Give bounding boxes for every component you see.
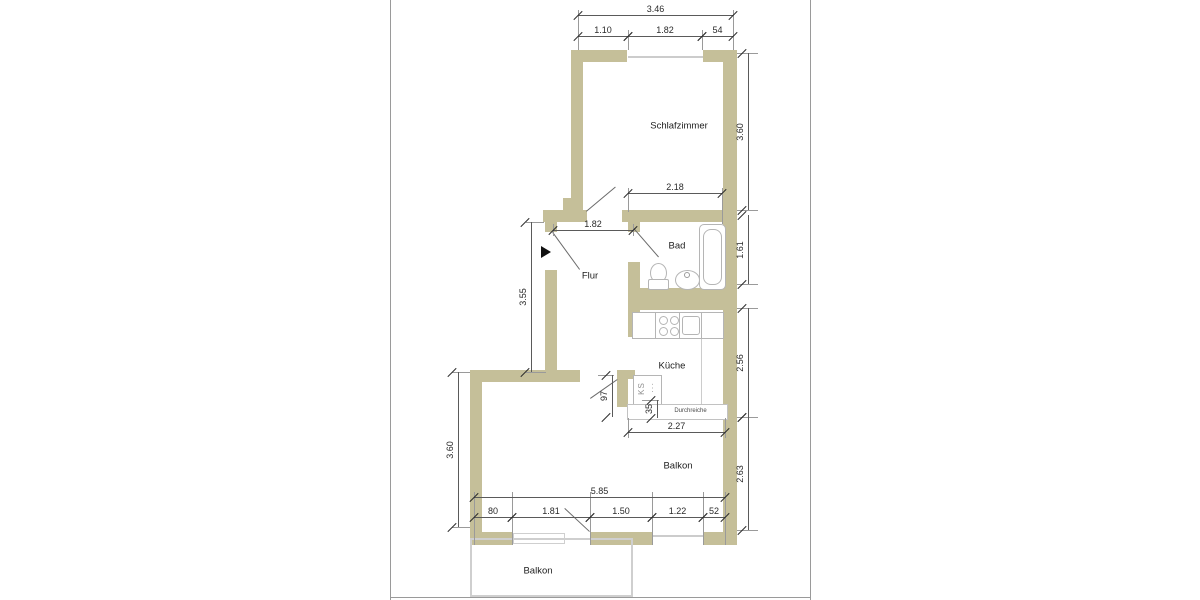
door-swing	[586, 187, 616, 212]
room-label-flur: Flur	[582, 271, 598, 282]
window-sill	[628, 56, 703, 58]
extension-line	[725, 418, 726, 438]
dimension-label: 3.60	[734, 110, 746, 154]
wall	[630, 288, 737, 310]
drainboard-outline	[701, 312, 724, 339]
dimension-line	[628, 193, 722, 194]
extension-line	[652, 492, 653, 545]
dimension-line	[628, 432, 725, 433]
floor-plan-page: 3.461.101.82542.181.822.275.85801.811.50…	[0, 0, 1200, 600]
dimension-line	[628, 36, 702, 37]
dimension-label: 1.50	[599, 505, 643, 517]
dimension-label: 97	[598, 374, 610, 418]
dimension-label: 52	[692, 505, 736, 517]
toilet-base	[648, 279, 669, 290]
dimension-line	[553, 230, 633, 231]
dimension-label: 1.82	[643, 24, 687, 36]
dimension-line	[703, 517, 725, 518]
wall	[545, 270, 557, 372]
dimension-line	[748, 417, 749, 530]
dimension-line	[748, 308, 749, 417]
extension-line	[628, 418, 629, 438]
extension-line	[452, 372, 470, 373]
extension-line	[452, 527, 470, 528]
dimension-line	[612, 375, 613, 417]
dimension-label: 54	[696, 24, 740, 36]
wall	[617, 379, 628, 407]
window-sill	[653, 535, 703, 537]
dimension-label: 3.46	[634, 3, 678, 15]
dimension-label: 3.60	[444, 428, 456, 472]
dimension-line	[590, 517, 652, 518]
dimension-label: 2.18	[653, 181, 697, 193]
room-label-bad: Bad	[669, 241, 686, 252]
room-label-balkon-lower: Balkon	[523, 566, 552, 577]
page-border-left	[390, 0, 391, 600]
dimension-line	[748, 215, 749, 284]
stove-burner-icon	[670, 316, 679, 325]
dimension-label: 1.82	[571, 218, 615, 230]
dimension-label: 1.81	[529, 505, 573, 517]
wall	[703, 532, 737, 545]
dimension-line	[748, 53, 749, 210]
page-border-right	[810, 0, 811, 600]
door-swing	[552, 232, 580, 270]
stove-burner-icon	[659, 327, 668, 336]
extension-line	[703, 492, 704, 545]
extension-line	[590, 492, 591, 545]
dimension-label: 80	[471, 505, 515, 517]
extension-line	[512, 492, 513, 545]
plan-drawing-layer: 3.461.101.82542.181.822.275.85801.811.50…	[0, 0, 1200, 600]
wall	[622, 210, 737, 222]
room-label-balkon: Balkon	[663, 461, 692, 472]
dimension-label: 5.85	[578, 485, 622, 497]
dimension-label: 3.55	[517, 275, 529, 319]
dimension-line	[474, 517, 512, 518]
pass-through-label: Durchreiche	[674, 408, 706, 414]
dimension-line	[458, 372, 459, 527]
entrance-arrow-icon	[541, 246, 551, 258]
stove	[655, 312, 682, 339]
dimension-line	[657, 400, 658, 418]
page-border-bottom	[390, 597, 810, 598]
dimension-label: 1.10	[581, 24, 625, 36]
extension-line	[725, 492, 726, 545]
sink-basin	[682, 316, 700, 335]
stove-burner-icon	[659, 316, 668, 325]
room-label-schlafzimmer: Schlafzimmer	[650, 121, 708, 132]
bathtub-inner	[703, 229, 722, 285]
dimension-line	[531, 222, 532, 372]
stove-burner-icon	[670, 327, 679, 336]
kitchen-divider-line	[701, 337, 702, 404]
extension-line	[474, 492, 475, 545]
dimension-line	[578, 36, 628, 37]
dimension-line	[474, 497, 725, 498]
extension-line	[526, 222, 544, 223]
dimension-label: 2.27	[655, 420, 699, 432]
refrigerator-dots-icon: ···	[648, 382, 657, 393]
dimension-label: 1.61	[734, 228, 746, 272]
wall	[571, 50, 583, 212]
room-label-kueche: Küche	[659, 361, 686, 372]
dimension-line	[652, 517, 703, 518]
refrigerator-label: KS	[637, 382, 646, 395]
washbasin-faucet-dot	[684, 272, 690, 278]
dimension-line	[578, 15, 733, 16]
dimension-line	[702, 36, 733, 37]
door-swing	[633, 228, 659, 257]
dimension-label: 2.56	[734, 341, 746, 385]
dimension-line	[512, 517, 590, 518]
dimension-label: 2.63	[734, 452, 746, 496]
extension-line	[526, 372, 546, 373]
